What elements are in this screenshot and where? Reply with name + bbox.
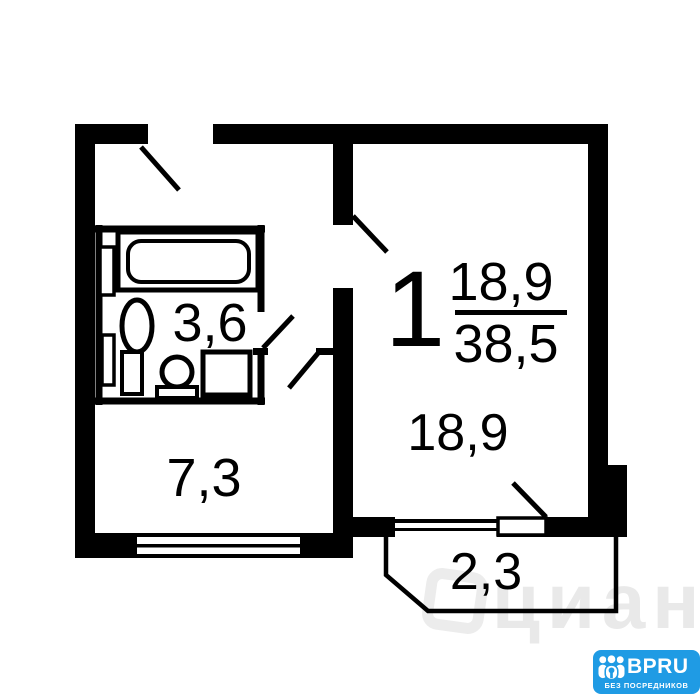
duct-lower-icon bbox=[102, 335, 114, 385]
floor-plan-image: циан bbox=[0, 0, 700, 700]
door-swing-bathroom bbox=[263, 316, 293, 348]
bpru-tagline: БЕЗ ПОСРЕДНИКОВ bbox=[593, 681, 700, 690]
bpru-brand-text: BPRU bbox=[627, 655, 689, 679]
floor-plan-drawing bbox=[0, 0, 700, 700]
window-hallway-line bbox=[137, 544, 300, 548]
label-living-area: 18,9 bbox=[448, 255, 553, 309]
wall-right-lower bbox=[588, 465, 627, 537]
toilet-bowl-icon bbox=[122, 300, 152, 352]
wall-divider-lower bbox=[333, 288, 353, 558]
balcony-door-swing bbox=[513, 483, 546, 517]
washer-icon bbox=[203, 352, 250, 395]
label-bathroom-area: 3,6 bbox=[172, 296, 247, 350]
window-room-line-2 bbox=[395, 528, 497, 531]
bpru-people-icon bbox=[598, 653, 625, 680]
label-hallway-area: 7,3 bbox=[166, 451, 241, 505]
window-balcony bbox=[395, 483, 546, 537]
bathtub-basin-icon bbox=[128, 241, 249, 282]
door-jamb-bathroom bbox=[253, 348, 268, 355]
wall-divider-upper bbox=[333, 144, 353, 225]
duct-upper-icon bbox=[100, 247, 114, 295]
wall-right-upper bbox=[588, 124, 608, 465]
bpru-logo-top: BPRU bbox=[598, 653, 689, 680]
label-total-area: 38,5 bbox=[453, 317, 558, 371]
wall-top-right bbox=[213, 124, 608, 144]
wall-left bbox=[75, 124, 95, 558]
toilet-tank-icon bbox=[122, 352, 142, 394]
label-room-area: 18,9 bbox=[407, 407, 508, 459]
sink-bowl-icon bbox=[162, 357, 192, 387]
door-swing-entrance bbox=[141, 147, 179, 190]
bpru-logo: BPRU БЕЗ ПОСРЕДНИКОВ bbox=[593, 650, 700, 694]
sink-base-icon bbox=[157, 387, 197, 398]
window-room-line-1 bbox=[395, 519, 497, 523]
label-room-count: 1 bbox=[385, 255, 445, 363]
window-hallway bbox=[137, 537, 300, 554]
balcony-door-leaf bbox=[498, 518, 546, 535]
label-balcony-area: 2,3 bbox=[450, 546, 522, 598]
door-swing-room bbox=[353, 216, 387, 252]
door-swing-hall bbox=[289, 352, 319, 388]
